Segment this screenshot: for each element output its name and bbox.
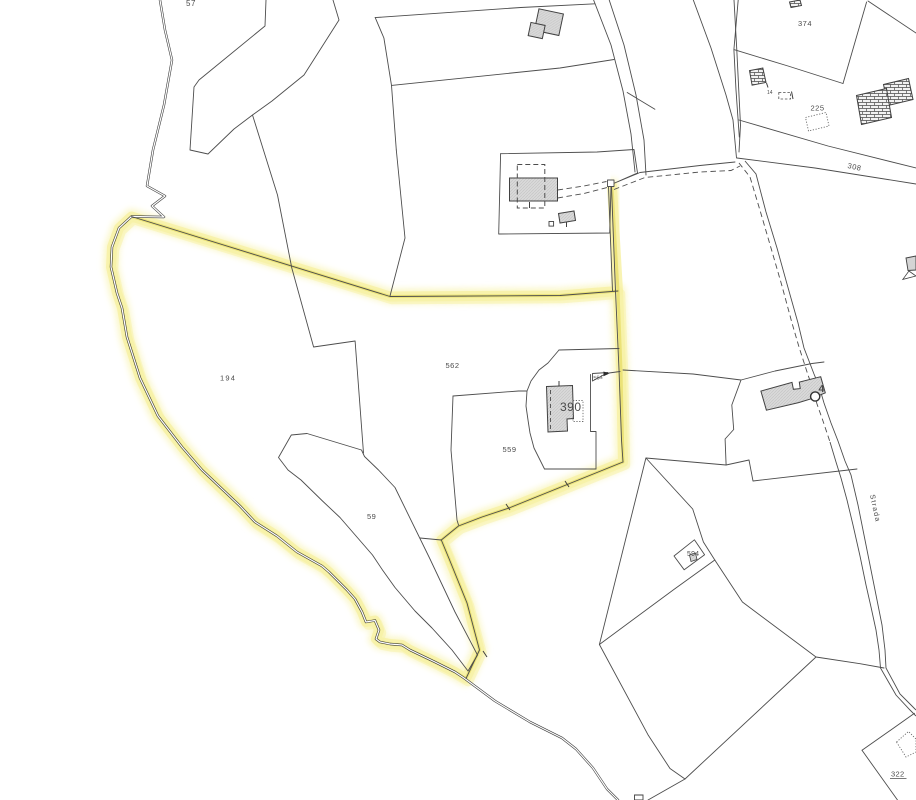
svg-text:594: 594 [687,551,699,558]
svg-text:225: 225 [811,104,825,113]
svg-text:194: 194 [220,374,236,383]
svg-text:374: 374 [798,19,812,28]
svg-text:14: 14 [767,90,773,96]
svg-text:559: 559 [503,445,517,454]
svg-text:562: 562 [446,361,460,370]
svg-text:59: 59 [367,512,376,521]
svg-text:4: 4 [819,383,825,395]
svg-text:390: 390 [560,400,582,414]
svg-text:57: 57 [186,0,196,8]
svg-text:322: 322 [891,770,904,779]
svg-text:564: 564 [593,375,603,382]
